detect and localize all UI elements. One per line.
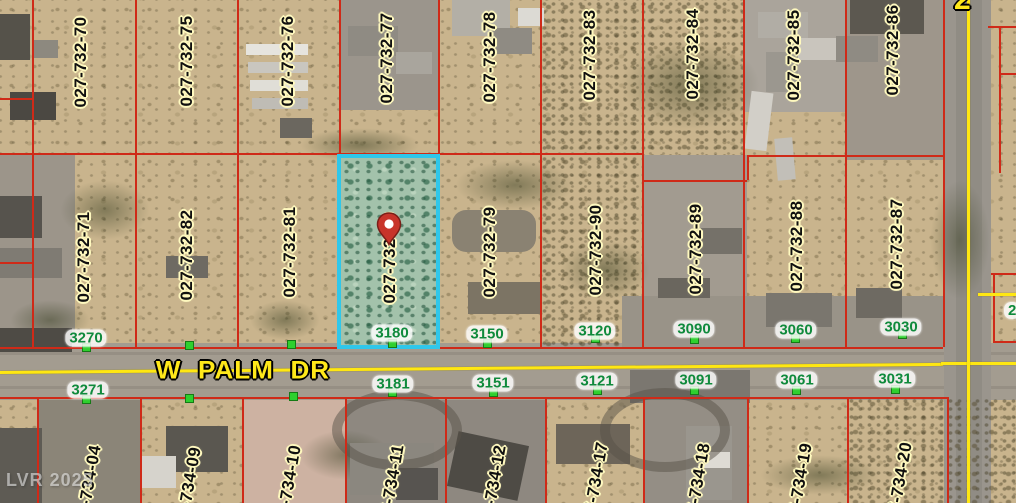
building	[280, 118, 312, 138]
parcel-number: 027-732-75	[177, 16, 197, 107]
address-label: 3091	[675, 372, 716, 389]
address-point-dot	[185, 394, 194, 403]
parcel-number: 027-732-88	[787, 201, 807, 292]
address-label: 3271	[67, 382, 108, 399]
building	[34, 40, 58, 58]
parcel-number: 027-732-82	[177, 210, 197, 301]
parcel-number: 027-732-81	[280, 207, 300, 298]
address-label: 3030	[880, 319, 921, 336]
parcel-line	[993, 341, 1016, 343]
parcel-line	[847, 397, 849, 503]
parcel-line	[345, 397, 347, 503]
parcel-line	[0, 153, 643, 155]
parcel-line	[0, 98, 32, 100]
parcel-line	[991, 273, 1016, 275]
building	[0, 428, 42, 503]
parcel-line	[642, 180, 747, 182]
parcel-line	[743, 0, 745, 347]
parcel-line	[237, 0, 239, 347]
parcel-line	[845, 0, 847, 347]
address-label: 3090	[673, 321, 714, 338]
parcel-line	[943, 0, 945, 347]
parcel-line	[0, 262, 32, 264]
address-label-partial: 2	[1004, 302, 1016, 319]
parcel-line	[947, 397, 949, 503]
parcel-number: 027-732-71	[74, 212, 94, 303]
aerial-parcel-map[interactable]: 027-732-70027-732-75027-732-76027-732-77…	[0, 0, 1016, 503]
parcel-number: 027-732-76	[278, 16, 298, 107]
trailer	[140, 456, 176, 488]
parcel-line	[242, 397, 244, 503]
parcel-number: 027-732-89	[686, 204, 706, 295]
parcel-line	[999, 73, 1016, 75]
vegetation	[930, 180, 990, 300]
address-label: 3060	[775, 322, 816, 339]
parcel-number: 027-732-90	[586, 205, 606, 296]
road-surface-shading	[0, 352, 1016, 355]
parcel-number: 027-732-79	[480, 207, 500, 298]
parcel-line	[0, 397, 947, 399]
parcel-line	[999, 26, 1001, 173]
address-label: 3061	[776, 372, 817, 389]
parcel-number: 027-732-87	[887, 199, 907, 290]
parcel-number: 027-732-86	[883, 5, 903, 96]
address-label: 3181	[372, 376, 413, 393]
road-centerline-north-south	[967, 0, 970, 503]
vegetation	[760, 455, 880, 495]
parcel-line	[32, 0, 34, 347]
parcel-line	[135, 0, 137, 347]
street-label-w-palm-dr: W PALM DR	[156, 357, 330, 386]
street-label-partial: 2	[954, 0, 971, 17]
building	[0, 196, 42, 238]
trailer	[246, 44, 308, 55]
parcel-line	[339, 0, 341, 155]
parcel-line	[545, 397, 547, 503]
parcel-line	[993, 273, 995, 341]
address-label: 3180	[371, 325, 412, 342]
road-centerline-side-street	[978, 293, 1016, 296]
address-label: 3031	[874, 371, 915, 388]
parcel-line	[0, 347, 943, 349]
parcel-line	[540, 0, 542, 347]
building	[396, 52, 432, 74]
building	[0, 14, 30, 60]
building	[856, 288, 902, 318]
building	[836, 36, 878, 62]
address-label: 3150	[466, 326, 507, 343]
parcel-line	[140, 397, 142, 503]
parcel-number: 027-732-70	[71, 17, 91, 108]
parcel-line	[747, 155, 749, 180]
parcel-line	[988, 26, 1016, 28]
address-label: 3121	[576, 373, 617, 390]
brush-field	[847, 397, 1016, 503]
vegetation	[455, 160, 575, 210]
watermark: LVR 2025	[6, 470, 94, 491]
address-label: 3151	[472, 375, 513, 392]
address-point-dot	[289, 392, 298, 401]
parcel-line	[747, 155, 943, 157]
address-point-dot	[185, 341, 194, 350]
map-pin-icon	[376, 212, 402, 251]
parcel-number: 027-732-78	[480, 12, 500, 103]
trailer	[774, 137, 796, 180]
parcel-number: 027-732-83	[580, 10, 600, 101]
building	[700, 228, 742, 254]
address-label: 3120	[574, 323, 615, 340]
road-centerline-wpalm-east	[941, 362, 1016, 365]
parcel-number: 027-732-84	[683, 9, 703, 100]
address-label: 3270	[65, 330, 106, 347]
parcel-number: 027-732-77	[377, 13, 397, 104]
parcel-line	[643, 397, 645, 503]
parcel-line	[642, 153, 644, 180]
parcel-number: 027-732-85	[784, 10, 804, 101]
parcel-line	[445, 397, 447, 503]
address-point-dot	[287, 340, 296, 349]
parcel-line	[747, 397, 749, 503]
parcel-line	[438, 0, 440, 155]
vegetation	[250, 300, 320, 340]
